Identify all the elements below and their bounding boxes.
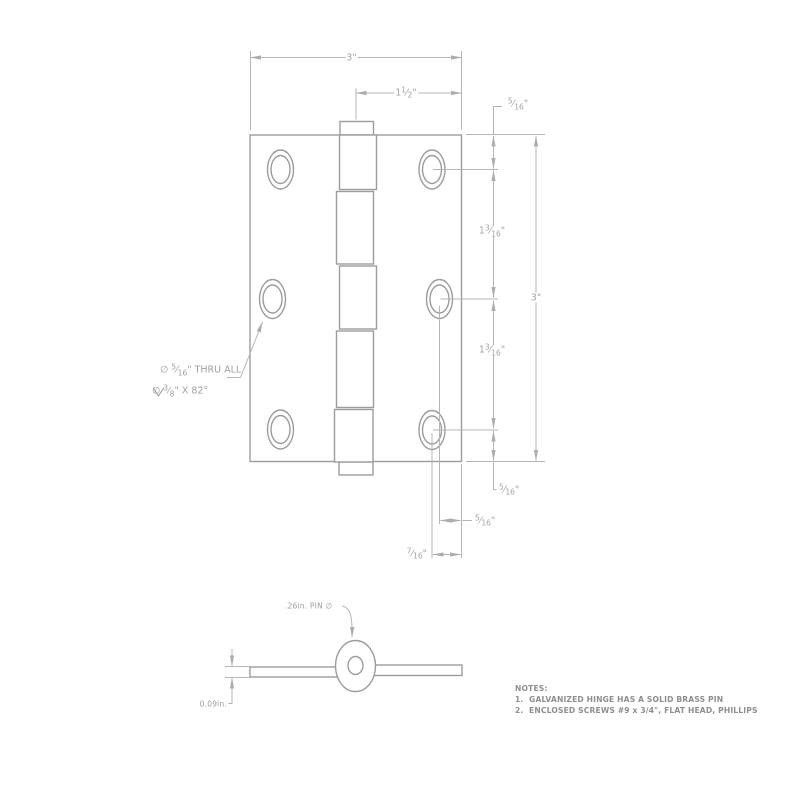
leader-line (229, 701, 233, 704)
screw-hole-top-left (268, 150, 294, 189)
dim-label-edge-to-hole-top: 5⁄16" (507, 99, 529, 109)
knuckle-segment (340, 266, 377, 329)
knuckle-segment (337, 331, 374, 408)
pin-leader (342, 606, 352, 638)
dimension-lines (225, 51, 545, 704)
thru-hole-note: ∅ 5⁄16" THRU ALL (160, 365, 241, 375)
hole-callout-line1: ∅ 5⁄16" THRU ALL (160, 365, 241, 375)
knuckle-segment (340, 135, 377, 190)
screw-hole-middle-left (260, 280, 286, 319)
dim-label-edge-to-hole-bottom: 5⁄16" (498, 485, 520, 495)
hinge-technical-drawing: 3" 11⁄2" 5⁄16" 13⁄16" 3" 13⁄16" 5⁄16" 5⁄… (0, 0, 800, 800)
knuckle-segment (335, 410, 374, 463)
right-leaf-edge (374, 665, 462, 676)
screw-hole-bottom-left (268, 410, 294, 449)
hole-callout-line2: ∅ 3⁄8" X 82° (152, 386, 208, 396)
dim-label-center-to-edge: 11⁄2" (394, 88, 418, 98)
pin-diameter-label: .26in. PIN ∅ (285, 602, 332, 610)
notes-item-2: 2. ENCLOSED SCREWS #9 x 3/4", FLAT HEAD,… (515, 707, 758, 715)
dim-label-middle-hole-inset: 5⁄16" (474, 516, 496, 526)
pin-cap-top (340, 122, 374, 136)
leader-line (494, 463, 497, 490)
dim-label-corner-hole-inset: 7⁄16" (406, 549, 428, 559)
hole-callout-leader (241, 322, 263, 378)
hinge-barrel (335, 135, 377, 462)
side-view (250, 641, 462, 692)
drawing-linework (0, 0, 800, 800)
leader-line (494, 107, 503, 136)
dim-label-hole-spacing-lower: 13⁄16" (478, 345, 506, 355)
notes-title: NOTES: (515, 685, 548, 693)
pin-cap-bottom (339, 462, 373, 475)
dim-label-height: 3" (530, 293, 542, 303)
front-view (250, 122, 462, 476)
pin-hole-edge (348, 657, 363, 675)
notes-item-1: 1. GALVANIZED HINGE HAS A SOLID BRASS PI… (515, 696, 723, 704)
dim-label-hole-spacing-upper: 13⁄16" (478, 226, 506, 236)
left-leaf-edge (250, 667, 338, 677)
dim-label-width: 3" (345, 53, 357, 63)
thickness-label: 0.09in. (200, 700, 227, 708)
knuckle-segment (337, 192, 374, 265)
